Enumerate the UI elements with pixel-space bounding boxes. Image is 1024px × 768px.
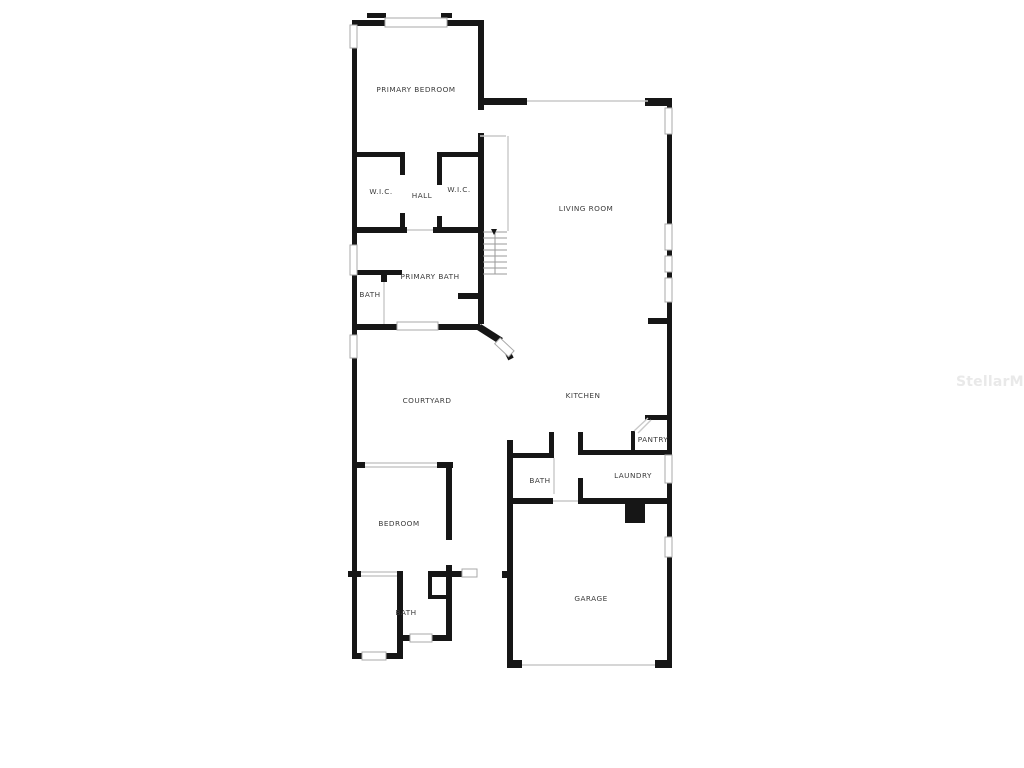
room-label-wic-left: W.I.C.: [369, 187, 392, 196]
floor-plan-drawing: PRIMARY BEDROOM W.I.C. HALL W.I.C. LIVIN…: [0, 0, 1024, 768]
room-label-hall: HALL: [412, 191, 433, 200]
pantry-door-swing: [634, 418, 651, 433]
room-label-guest-bath: BATH: [395, 608, 416, 617]
window-icon: [410, 634, 432, 642]
window-icon: [350, 25, 357, 48]
room-label-living-room: LIVING ROOM: [559, 204, 614, 213]
window-icon: [385, 18, 447, 27]
window-icon: [665, 224, 672, 250]
room-label-courtyard: COURTYARD: [403, 396, 452, 405]
room-label-pantry: PANTRY: [638, 435, 669, 444]
window-icon: [397, 322, 438, 330]
window-icon: [665, 256, 672, 272]
window-icon: [665, 108, 672, 134]
water-heater: [625, 498, 645, 523]
watermark: StellarMLS: [956, 374, 1024, 390]
window-icon: [665, 278, 672, 302]
room-label-hall-bath: BATH: [529, 476, 550, 485]
room-label-wic-right: W.I.C.: [447, 185, 470, 194]
window-icon: [350, 245, 357, 275]
window-icon: [350, 335, 357, 358]
window-icon: [665, 455, 672, 483]
room-label-primary-bedroom: PRIMARY BEDROOM: [376, 85, 455, 94]
window-icon: [362, 652, 386, 660]
room-label-primary-bath-wc: BATH: [359, 290, 380, 299]
room-label-primary-bath: PRIMARY BATH: [400, 272, 459, 281]
room-label-bedroom: BEDROOM: [378, 519, 419, 528]
window-icon: [495, 338, 514, 357]
room-label-laundry: LAUNDRY: [614, 471, 652, 480]
walls: [348, 13, 672, 668]
room-label-garage: GARAGE: [574, 594, 607, 603]
floor-plan-page: PRIMARY BEDROOM W.I.C. HALL W.I.C. LIVIN…: [0, 0, 1024, 768]
window-icon: [462, 569, 477, 577]
window-icon: [665, 537, 672, 557]
stairs: [483, 229, 507, 274]
room-label-kitchen: KITCHEN: [566, 391, 601, 400]
